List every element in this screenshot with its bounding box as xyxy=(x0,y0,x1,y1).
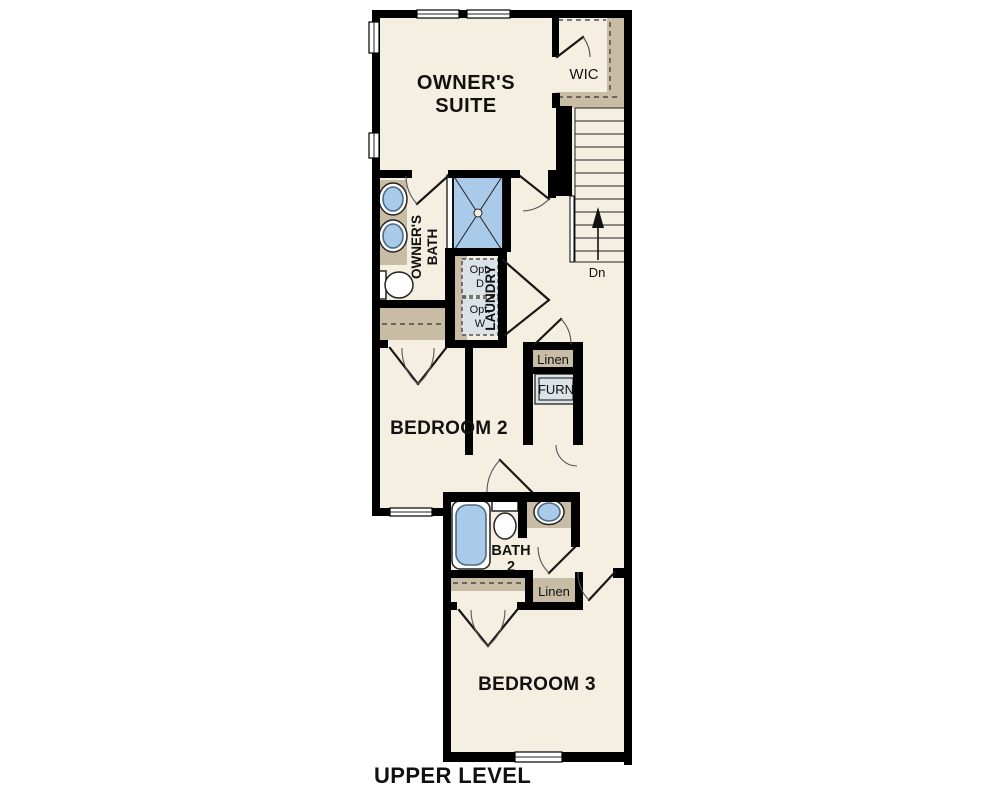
stair-railing xyxy=(570,196,574,262)
page-title: UPPER LEVEL xyxy=(374,763,531,788)
floor-area xyxy=(376,14,628,758)
owners-suite-label-line1: OWNER'S xyxy=(417,72,515,94)
linen-upper-label: Linen xyxy=(537,352,569,367)
bath2-label-line2: 2 xyxy=(507,559,515,575)
linen-lower-label: Linen xyxy=(538,584,570,599)
optional-washer-label-line2: W xyxy=(475,318,486,330)
wic-label: WIC xyxy=(569,66,598,83)
floor-plan-page: OWNER'S SUITE WIC OWNER'S BATH LAUNDRY O… xyxy=(0,0,1000,800)
floor-plan-svg: OWNER'S SUITE WIC OWNER'S BATH LAUNDRY O… xyxy=(0,0,1000,800)
owners-suite-label-line2: SUITE xyxy=(435,95,496,117)
svg-text:BATH: BATH xyxy=(425,229,440,266)
furnace-label: FURN xyxy=(538,382,574,397)
optional-dryer-label-line2: D xyxy=(476,278,484,290)
stairs-down-label: Dn xyxy=(589,265,606,280)
bath2-label-line1: BATH xyxy=(491,543,530,559)
optional-dryer-label-line1: Opt. xyxy=(470,264,491,276)
svg-text:OWNER'S: OWNER'S xyxy=(409,215,424,279)
wic-shelf-bottom xyxy=(556,92,624,108)
bedroom3-label: BEDROOM 3 xyxy=(478,674,596,695)
bedroom2-label: BEDROOM 2 xyxy=(390,418,508,439)
optional-washer-label-line1: Opt. xyxy=(470,304,491,316)
